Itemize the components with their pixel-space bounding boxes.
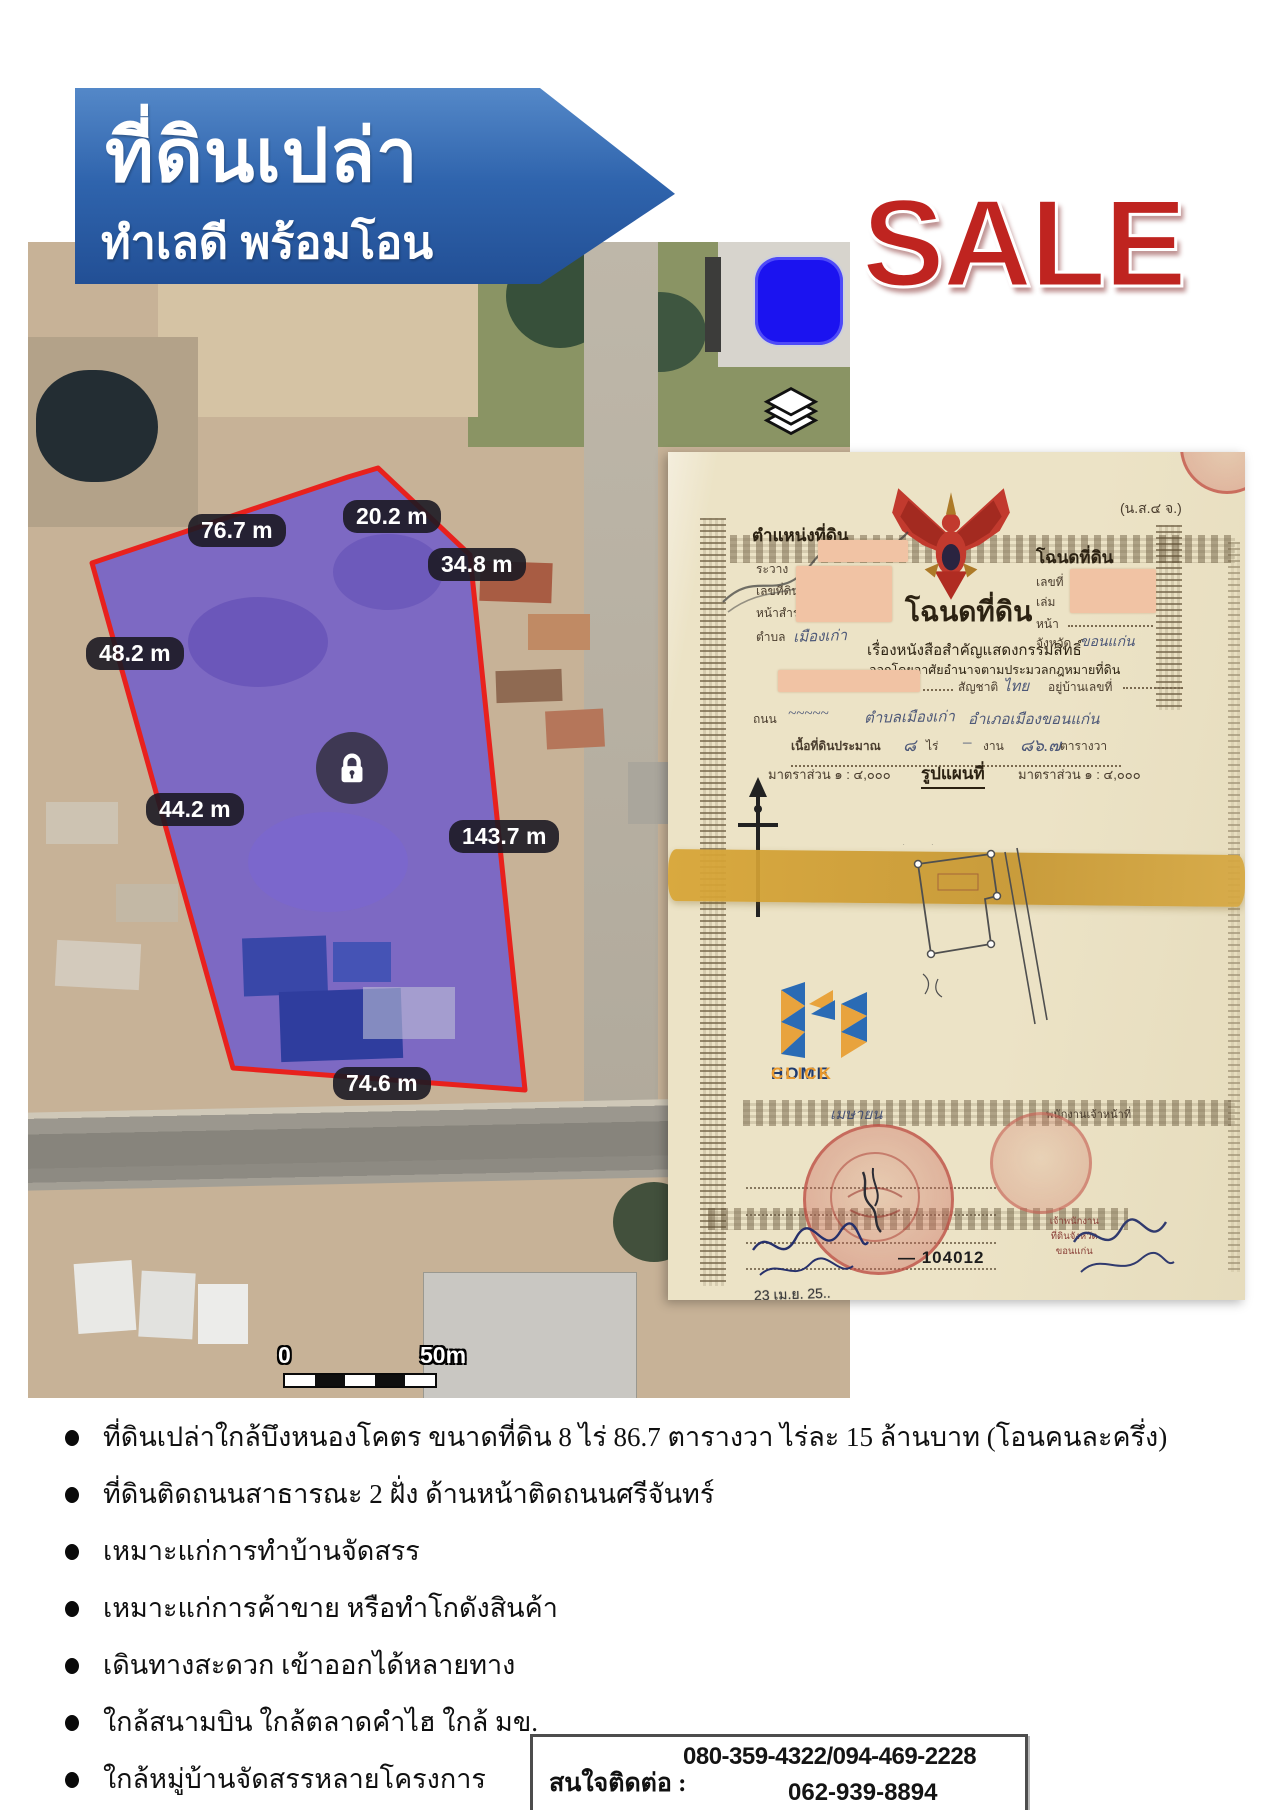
scale-bar [283, 1373, 437, 1388]
field-label: มาตราส่วน ๑ : ๔,๐๐๐ [1018, 764, 1141, 785]
title-deed-document: (น.ส.๔ จ.) ตำแหน่งที่ดิน ระวาง เลขที่ดิน… [668, 452, 1245, 1300]
deed-main-title: โฉนดที่ดิน [905, 590, 1032, 634]
measurement-text: 34.8 m [441, 551, 513, 577]
list-item-text: ที่ดินติดถนนสาธารณะ 2 ฝั่ง ด้านหน้าติดถน… [103, 1479, 714, 1509]
measurement-label: 76.7 m [188, 514, 286, 547]
layers-button[interactable] [762, 383, 820, 441]
list-item: เหมาะแก่การค้าขาย หรือทำโกดังสินค้า [55, 1593, 1235, 1624]
contact-label: สนใจติดต่อ : [549, 1763, 687, 1803]
document-number: — 104012 [898, 1248, 984, 1268]
measurement-label: 74.6 m [333, 1067, 431, 1100]
handwriting-soi: ~~~~~ [788, 706, 829, 723]
banner-subtitle: ทำเลดี พร้อมโอน [101, 206, 433, 278]
measurement-text: 143.7 m [462, 823, 546, 849]
handwriting-tambon-row: ตำบลเมืองเก่า [864, 704, 955, 730]
homeclick-click-text: CLICK [771, 1064, 833, 1084]
handwriting-nationality: ไทย [1003, 674, 1029, 698]
lock-button[interactable] [316, 732, 388, 804]
corner-date-stamp [1180, 452, 1245, 494]
field-label: สัญชาติ [958, 678, 998, 697]
deed-subtitle-1: เรื่องหนังสือสำคัญแสดงกรรมสิทธิ์ [867, 638, 1082, 662]
dotted-line [923, 676, 953, 691]
scale-end-text: 50m [420, 1342, 466, 1368]
plan-label: รูปแผนที่ [921, 760, 985, 789]
scale-zero-text: 0 [278, 1342, 291, 1368]
handwriting-amphoe: อำเภอเมืองขอนแก่น [968, 707, 1099, 731]
blue-roof-building [333, 942, 391, 982]
list-item-text: ใกล้สนามบิน ใกล้ตลาดคำไฮ ใกล้ มข. [103, 1707, 538, 1737]
sale-text: SALE [862, 182, 1262, 322]
measurement-label: 20.2 m [343, 500, 441, 533]
deed-block-title: โฉนดที่ดิน [1036, 544, 1113, 571]
phone-numbers-line1: 080-359-4322/094-469-2228 [683, 1743, 976, 1771]
redaction-box [796, 566, 892, 622]
field-label: ถนน [753, 710, 777, 729]
measurement-label: 48.2 m [86, 637, 184, 670]
blue-marker-square[interactable] [755, 257, 843, 345]
handwriting-province: ขอนแก่น [1080, 631, 1135, 653]
list-item-text: เดินทางสะดวก เข้าออกได้หลายทาง [103, 1650, 515, 1680]
measurement-text: 76.7 m [201, 517, 273, 543]
parked-vehicles [363, 987, 455, 1039]
banner-title: ที่ดินเปล่า [105, 96, 419, 214]
field-label: ระวาง [756, 560, 788, 579]
handwriting-month: เมษายน [830, 1102, 882, 1126]
field-label: มาตราส่วน ๑ : ๔,๐๐๐ [768, 764, 891, 785]
handwriting-tambon: เมืองเก่า [793, 623, 848, 649]
measurement-text: 48.2 m [99, 640, 171, 666]
date-stamp: 23 เม.ย. 25.. [754, 1283, 831, 1300]
field-label: ตำบล [756, 628, 786, 647]
homeclick-logo-icon [779, 980, 874, 1062]
deed-border-ornament [1228, 542, 1240, 1272]
field-label: เลขที่ [1036, 573, 1064, 592]
scale-end: 50m [420, 1342, 466, 1369]
measurement-label: 34.8 m [428, 548, 526, 581]
measurement-text: 44.2 m [159, 796, 231, 822]
list-item: เหมาะแก่การทำบ้านจัดสรร [55, 1536, 1235, 1567]
dotted-line [1068, 612, 1153, 627]
lock-icon [333, 749, 371, 787]
field-label: หน้า [1036, 615, 1059, 634]
deed-border-ornament [743, 1100, 1235, 1126]
flyer-page: 76.7 m 20.2 m 34.8 m 48.2 m 44.2 m 143.7… [0, 0, 1280, 1810]
dotted-line [1123, 674, 1183, 689]
list-item: เดินทางสะดวก เข้าออกได้หลายทาง [55, 1650, 1235, 1681]
field-label: เลขที่ดิน [756, 582, 800, 601]
list-item-text: ใกล้หมู่บ้านจัดสรรหลายโครงการ [103, 1764, 486, 1794]
list-item: ที่ดินติดถนนสาธารณะ 2 ฝั่ง ด้านหน้าติดถน… [55, 1479, 1235, 1510]
list-item-text: ที่ดินเปล่าใกล้บึงหนองโคตร ขนาดที่ดิน 8 … [103, 1422, 1167, 1452]
deed-form-code: (น.ส.๔ จ.) [1120, 498, 1182, 520]
phone-numbers-line2: 062-939-8894 [788, 1779, 937, 1807]
field-label: อยู่บ้านเลขที่ [1048, 678, 1112, 697]
measurement-text: 20.2 m [356, 503, 428, 529]
measurement-text: 74.6 m [346, 1070, 418, 1096]
list-item: ที่ดินเปล่าใกล้บึงหนองโคตร ขนาดที่ดิน 8 … [55, 1422, 1235, 1453]
measurement-label: 44.2 m [146, 793, 244, 826]
layers-icon [762, 383, 820, 441]
secondary-round-stamp [990, 1112, 1092, 1214]
scale-zero: 0 [278, 1342, 291, 1369]
handwriting-ngan: – [963, 732, 972, 752]
signature-left [748, 1220, 873, 1290]
redaction-box [778, 670, 920, 692]
deed-border-ornament [700, 518, 726, 1286]
parcel-sketch [893, 844, 1048, 1034]
homeclick-logo: HOMECLICK [771, 980, 891, 1085]
contact-box: สนใจติดต่อ : 080-359-4322/094-469-2228 0… [530, 1734, 1028, 1810]
redaction-box [1070, 569, 1156, 613]
measurement-label: 143.7 m [449, 820, 559, 853]
blue-roof-building [242, 936, 328, 997]
field-label: เล่ม [1036, 593, 1055, 612]
list-item-text: เหมาะแก่การค้าขาย หรือทำโกดังสินค้า [103, 1593, 558, 1623]
list-item-text: เหมาะแก่การทำบ้านจัดสรร [103, 1536, 420, 1566]
signature-right [1066, 1207, 1181, 1292]
